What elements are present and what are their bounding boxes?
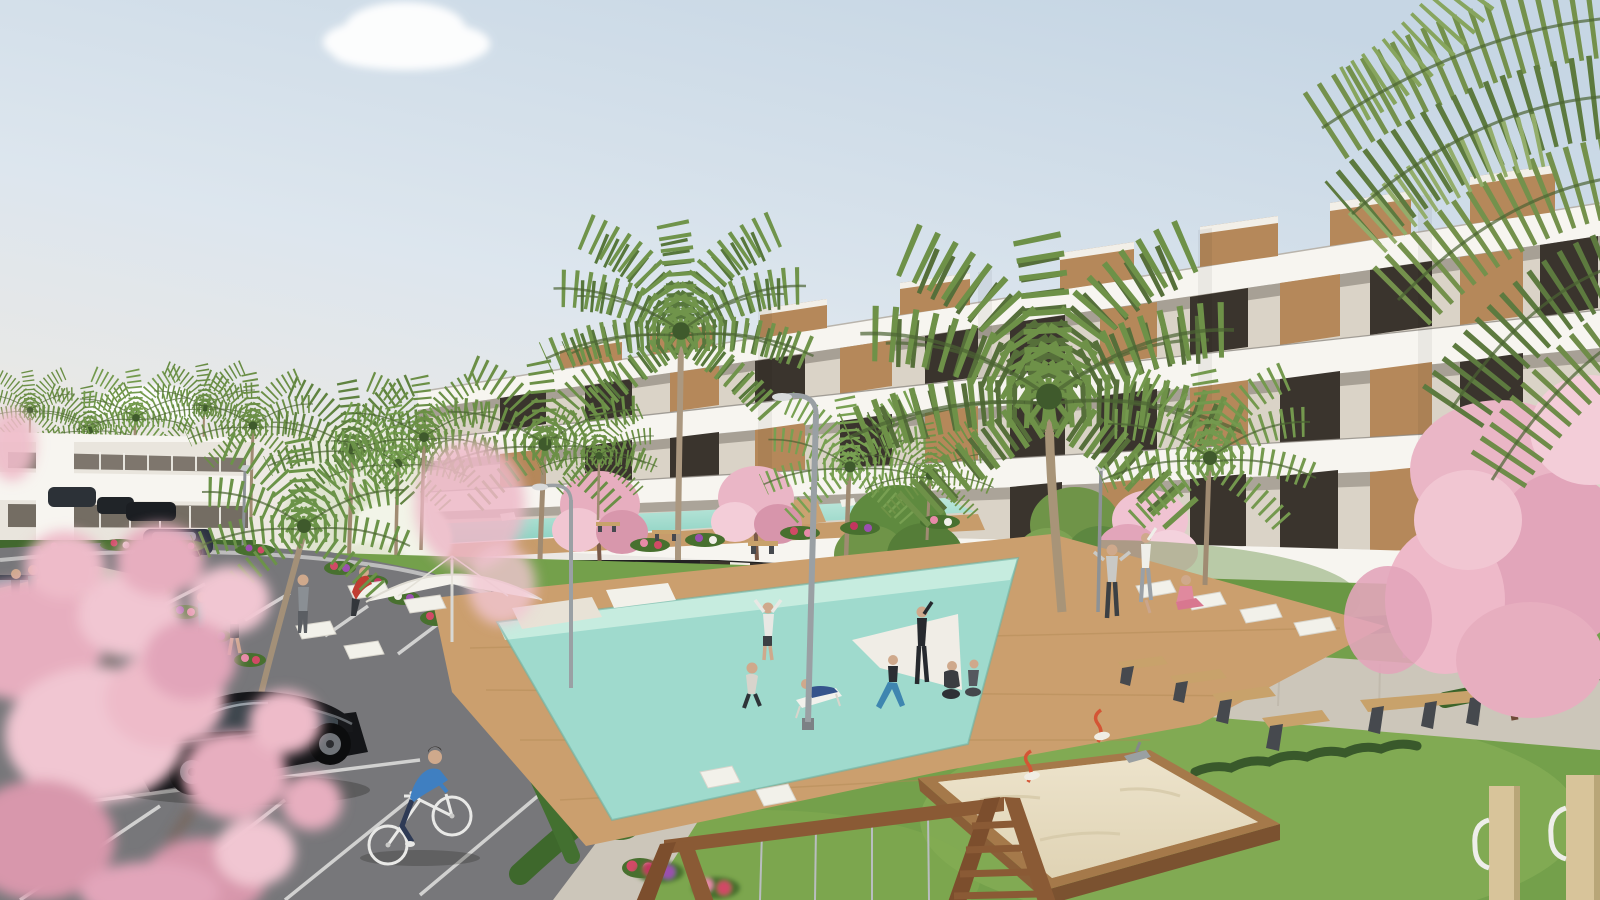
- rendering-canvas: [0, 0, 1600, 900]
- parked-sedan-1: [48, 487, 96, 507]
- lamp-head: [532, 484, 548, 491]
- parked-sedan-3: [126, 502, 176, 521]
- lamp-head: [772, 393, 792, 401]
- resort-rendering: [0, 0, 1600, 900]
